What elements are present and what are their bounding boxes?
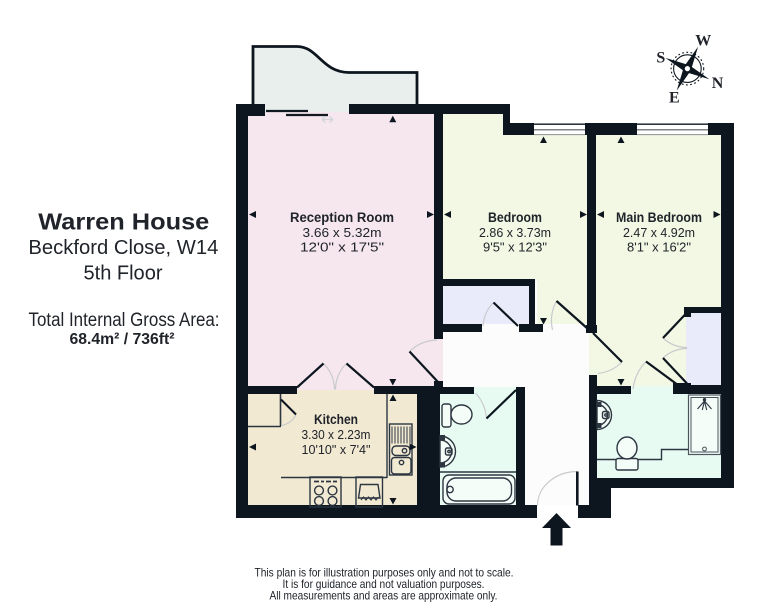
svg-text:Kitchen: Kitchen — [314, 412, 358, 427]
svg-text:10'10" x 7'4": 10'10" x 7'4" — [302, 442, 371, 457]
svg-text:All measurements and areas are: All measurements and areas are approxima… — [270, 589, 498, 603]
svg-text:5th Floor: 5th Floor — [84, 263, 163, 285]
svg-text:3.66 x 5.32m: 3.66 x 5.32m — [303, 225, 382, 240]
svg-text:N: N — [712, 75, 724, 92]
svg-text:2.86 x 3.73m: 2.86 x 3.73m — [479, 225, 551, 240]
svg-text:68.4m² / 736ft²: 68.4m² / 736ft² — [70, 331, 175, 348]
svg-text:8'1" x 16'2": 8'1" x 16'2" — [627, 240, 691, 255]
svg-text:E: E — [669, 90, 680, 107]
svg-text:Bedroom: Bedroom — [488, 210, 542, 225]
svg-text:Main Bedroom: Main Bedroom — [616, 210, 702, 225]
svg-text:Total Internal Gross Area:: Total Internal Gross Area: — [29, 310, 220, 331]
svg-text:W: W — [695, 32, 711, 49]
svg-text:Reception Room: Reception Room — [290, 210, 394, 225]
svg-text:Warren House: Warren House — [38, 209, 209, 235]
svg-text:Beckford Close, W14: Beckford Close, W14 — [28, 237, 218, 259]
svg-text:9'5" x 12'3": 9'5" x 12'3" — [483, 240, 547, 255]
svg-text:S: S — [656, 49, 665, 66]
svg-text:2.47 x 4.92m: 2.47 x 4.92m — [623, 225, 695, 240]
svg-text:3.30 x 2.23m: 3.30 x 2.23m — [302, 427, 371, 442]
svg-text:12'0" x 17'5": 12'0" x 17'5" — [300, 240, 384, 255]
